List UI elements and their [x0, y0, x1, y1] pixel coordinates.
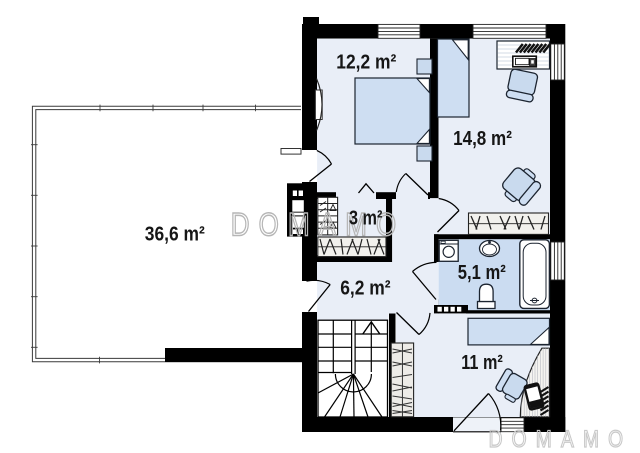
svg-text:5,1 m²: 5,1 m² [458, 262, 506, 284]
svg-text:DOMAMO: DOMAMO [489, 425, 633, 453]
svg-text:6,2 m²: 6,2 m² [340, 278, 391, 300]
svg-text:36,6 m²: 36,6 m² [145, 224, 205, 246]
svg-text:14,8 m²: 14,8 m² [453, 128, 512, 150]
svg-text:11 m²: 11 m² [461, 352, 503, 374]
svg-text:3 m²: 3 m² [349, 208, 383, 230]
svg-text:12,2 m²: 12,2 m² [336, 52, 396, 74]
